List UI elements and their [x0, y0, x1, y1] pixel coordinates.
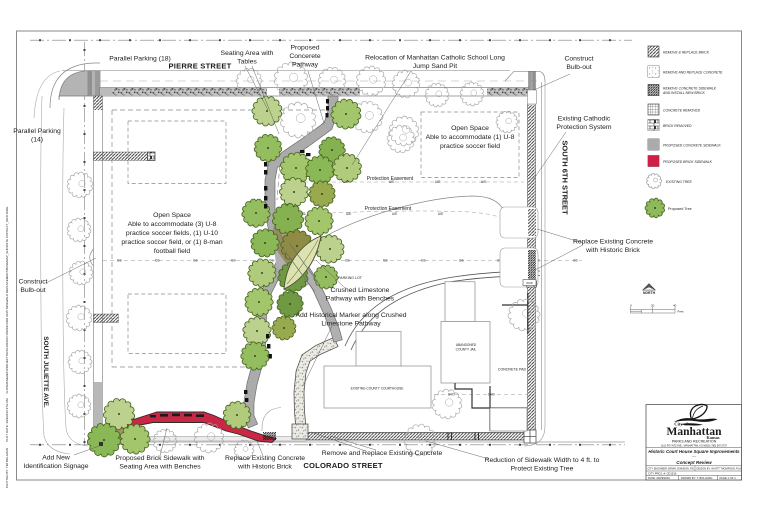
svg-text:Parallel Parking: Parallel Parking — [13, 128, 61, 135]
svg-text:Concept Review: Concept Review — [676, 460, 712, 465]
svg-text:U/E: U/E — [438, 212, 443, 216]
svg-text:Reduction of Sidewalk Width to: Reduction of Sidewalk Width to 4 ft. to — [485, 457, 600, 464]
svg-text:with Historic Brick: with Historic Brick — [237, 464, 292, 471]
svg-text:Pathway: Pathway — [292, 62, 319, 69]
svg-text:Proposed Brick Sidewalk with: Proposed Brick Sidewalk with — [115, 455, 204, 462]
svg-text:DRAWN BY: T. BOLLMAN: DRAWN BY: T. BOLLMAN — [681, 476, 712, 480]
svg-text:PARKING LOT: PARKING LOT — [338, 276, 363, 280]
svg-text:Add Historical Marker along Cr: Add Historical Marker along Crushed — [295, 312, 406, 319]
svg-text:Able to accommodate (1) U-8: Able to accommodate (1) U-8 — [426, 134, 515, 141]
svg-text:Replace Existing Concrete: Replace Existing Concrete — [573, 239, 653, 246]
svg-text:U/E: U/E — [435, 180, 440, 184]
svg-text:Seating Area with Benches: Seating Area with Benches — [119, 464, 201, 471]
svg-text:Limestone Pathway: Limestone Pathway — [321, 321, 381, 328]
svg-text:Proposed Tree: Proposed Tree — [668, 207, 692, 211]
svg-text:Jump Sand Pit: Jump Sand Pit — [413, 63, 457, 70]
svg-text:CONCRETE PAD: CONCRETE PAD — [498, 368, 527, 372]
svg-text:GS: GS — [155, 259, 160, 263]
svg-text:SOUTH JULIETTE AVE.: SOUTH JULIETTE AVE. — [42, 336, 49, 408]
svg-text:REMOVE & REPLACE BRICK: REMOVE & REPLACE BRICK — [663, 51, 710, 55]
svg-text:with Historic Brick: with Historic Brick — [585, 247, 640, 254]
svg-text:20: 20 — [651, 304, 655, 308]
svg-text:G:\PARKS&REC\PROJECTS\COLORADO: G:\PARKS&REC\PROJECTS\COLORADO PARK\CORR… — [5, 206, 9, 393]
svg-text:Protection System: Protection System — [556, 124, 611, 131]
svg-text:U/E: U/E — [346, 212, 351, 216]
svg-text:PLOTTED BY: TIM BOLLMAN: PLOTTED BY: TIM BOLLMAN — [5, 448, 9, 488]
svg-text:Protection Easement: Protection Easement — [367, 176, 414, 182]
svg-text:GS: GS — [573, 259, 578, 263]
svg-text:PARKS AND RECREATION: PARKS AND RECREATION — [672, 440, 717, 444]
svg-text:40: 40 — [673, 304, 677, 308]
svg-text:Remove and Replace Existing Co: Remove and Replace Existing Concrete — [322, 450, 443, 457]
svg-text:PLOT DATE: 4/29/2016 9:53 AM: PLOT DATE: 4/29/2016 9:53 AM — [5, 398, 9, 442]
svg-text:Proposed: Proposed — [290, 45, 319, 52]
svg-text:GS: GS — [231, 259, 236, 263]
svg-text:Open Space: Open Space — [451, 125, 489, 132]
svg-text:EXISTING TREE: EXISTING TREE — [666, 180, 693, 184]
svg-text:CONCRETE REMOVED: CONCRETE REMOVED — [663, 109, 701, 113]
svg-text:GS: GS — [345, 259, 350, 263]
svg-text:WOR: WOR — [526, 281, 532, 285]
svg-text:Historic Court House Square Im: Historic Court House Square Improvements — [648, 449, 740, 454]
svg-text:Tables: Tables — [237, 59, 257, 66]
svg-text:Able to accommodate (3) U-8: Able to accommodate (3) U-8 — [128, 221, 217, 228]
svg-text:practice soccer field: practice soccer field — [440, 143, 500, 150]
svg-text:Pathway with Benches: Pathway with Benches — [326, 296, 395, 303]
svg-text:REMOVE CONCRETE SIDEWALK: REMOVE CONCRETE SIDEWALK — [663, 87, 717, 91]
svg-text:Bulb-out: Bulb-out — [20, 287, 45, 294]
svg-text:Replace Existing Concrete: Replace Existing Concrete — [225, 455, 305, 462]
svg-text:GS: GS — [117, 259, 122, 263]
svg-text:Bulb-out: Bulb-out — [566, 64, 591, 71]
svg-text:SVO: SVO — [488, 393, 495, 397]
svg-text:DESIGN BY: WYATT THOMPSON, PLA: DESIGN BY: WYATT THOMPSON, PLA — [697, 468, 742, 471]
svg-text:ABANDONED: ABANDONED — [456, 343, 477, 347]
svg-text:Relocation of Manhattan Cathol: Relocation of Manhattan Catholic School … — [365, 55, 505, 62]
svg-text:Add New: Add New — [42, 455, 70, 462]
svg-text:SOUTH 6TH STREET: SOUTH 6TH STREET — [561, 140, 570, 215]
svg-text:----: ---- — [692, 455, 697, 459]
svg-text:EXISTING COUNTY COURTHOUSE: EXISTING COUNTY COURTHOUSE — [351, 387, 404, 391]
svg-text:CITY ENGINEER: BRIAN JOHNSON,: CITY ENGINEER: BRIAN JOHNSON, P.E. — [648, 468, 695, 471]
svg-text:PIERRE STREET: PIERRE STREET — [169, 62, 232, 71]
svg-text:Existing Cathodic: Existing Cathodic — [558, 116, 611, 123]
svg-text:GS: GS — [383, 259, 388, 263]
svg-text:Concerete: Concerete — [289, 53, 321, 60]
svg-text:Construct: Construct — [18, 279, 47, 286]
svg-text:Construct: Construct — [564, 56, 593, 63]
svg-text:CITY PROJ. #: CD1516: CITY PROJ. #: CD1516 — [648, 471, 677, 475]
svg-text:Crushed Limestone: Crushed Limestone — [331, 287, 390, 294]
svg-text:Protection Easement: Protection Easement — [365, 206, 412, 212]
svg-text:U/E: U/E — [392, 212, 397, 216]
svg-text:REMOVE AND REPLACE CONCRETE: REMOVE AND REPLACE CONCRETE — [663, 71, 723, 75]
svg-text:football field: football field — [154, 248, 190, 255]
svg-text:Seating Area with: Seating Area with — [221, 50, 274, 57]
svg-text:practice soccer field, or (1): practice soccer field, or (1) 8-man — [121, 239, 222, 246]
svg-text:GS: GS — [421, 259, 426, 263]
svg-text:AND INSTALL NEW BRICK: AND INSTALL NEW BRICK — [662, 91, 705, 95]
svg-text:BRICK REMOVED: BRICK REMOVED — [663, 124, 692, 128]
svg-text:PROPOSED CONCRETE SIDEWALK: PROPOSED CONCRETE SIDEWALK — [663, 144, 721, 148]
svg-text:1101 POYNTZ AVE., MANHATTAN, K: 1101 POYNTZ AVE., MANHATTAN, KS 66502 (7… — [661, 444, 728, 447]
svg-text:NORTH: NORTH — [643, 291, 656, 295]
svg-text:PAGE 1 OF 1: PAGE 1 OF 1 — [720, 476, 737, 480]
svg-text:GS: GS — [459, 259, 464, 263]
svg-text:Parallel Parking (18): Parallel Parking (18) — [109, 56, 171, 63]
svg-text:Open Space: Open Space — [153, 212, 191, 219]
svg-text:COLORADO STREET: COLORADO STREET — [303, 461, 383, 470]
svg-text:PROPOSED BRICK SIDEWALK: PROPOSED BRICK SIDEWALK — [663, 160, 713, 164]
svg-text:U/E: U/E — [481, 180, 486, 184]
svg-text:Feet: Feet — [678, 310, 684, 314]
svg-text:COUNTY JAIL: COUNTY JAIL — [456, 348, 477, 352]
svg-text:Protect Existing Tree: Protect Existing Tree — [511, 466, 574, 473]
svg-text:DATE: 09/29/2016: DATE: 09/29/2016 — [648, 476, 670, 480]
svg-text:GS: GS — [193, 259, 198, 263]
svg-text:(14): (14) — [31, 137, 43, 144]
svg-text:practice soccer fields, (1) U-: practice soccer fields, (1) U-10 — [126, 230, 218, 237]
svg-text:Identification Signage: Identification Signage — [24, 463, 89, 470]
